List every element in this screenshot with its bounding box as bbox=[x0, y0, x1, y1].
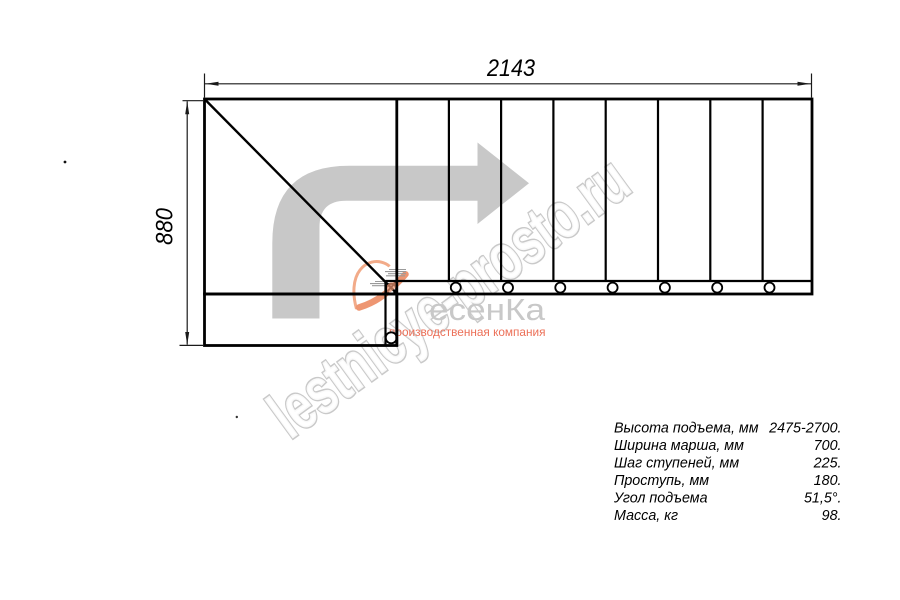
svg-text:225.: 225. bbox=[813, 455, 842, 471]
svg-text:есенКа: есенКа bbox=[429, 292, 546, 327]
svg-text:2143: 2143 bbox=[486, 55, 535, 82]
svg-text:Угол подъема: Угол подъема bbox=[613, 490, 708, 506]
svg-text:Проступь, мм: Проступь, мм bbox=[614, 473, 709, 489]
svg-text:51,5°.: 51,5°. bbox=[804, 490, 842, 506]
svg-text:Ширина марша, мм: Ширина марша, мм bbox=[614, 438, 744, 454]
svg-text:700.: 700. bbox=[814, 438, 842, 454]
svg-text:Высота подъема, мм: Высота подъема, мм bbox=[614, 421, 759, 437]
svg-text:880: 880 bbox=[152, 208, 179, 245]
svg-text:180.: 180. bbox=[814, 473, 842, 489]
svg-text:98.: 98. bbox=[822, 508, 842, 524]
svg-text:Масса, кг: Масса, кг bbox=[614, 508, 678, 524]
svg-text:производственная компания: производственная компания bbox=[389, 325, 546, 339]
svg-text:2475-2700.: 2475-2700. bbox=[768, 421, 841, 437]
svg-text:Шаг ступеней, мм: Шаг ступеней, мм bbox=[614, 455, 739, 471]
